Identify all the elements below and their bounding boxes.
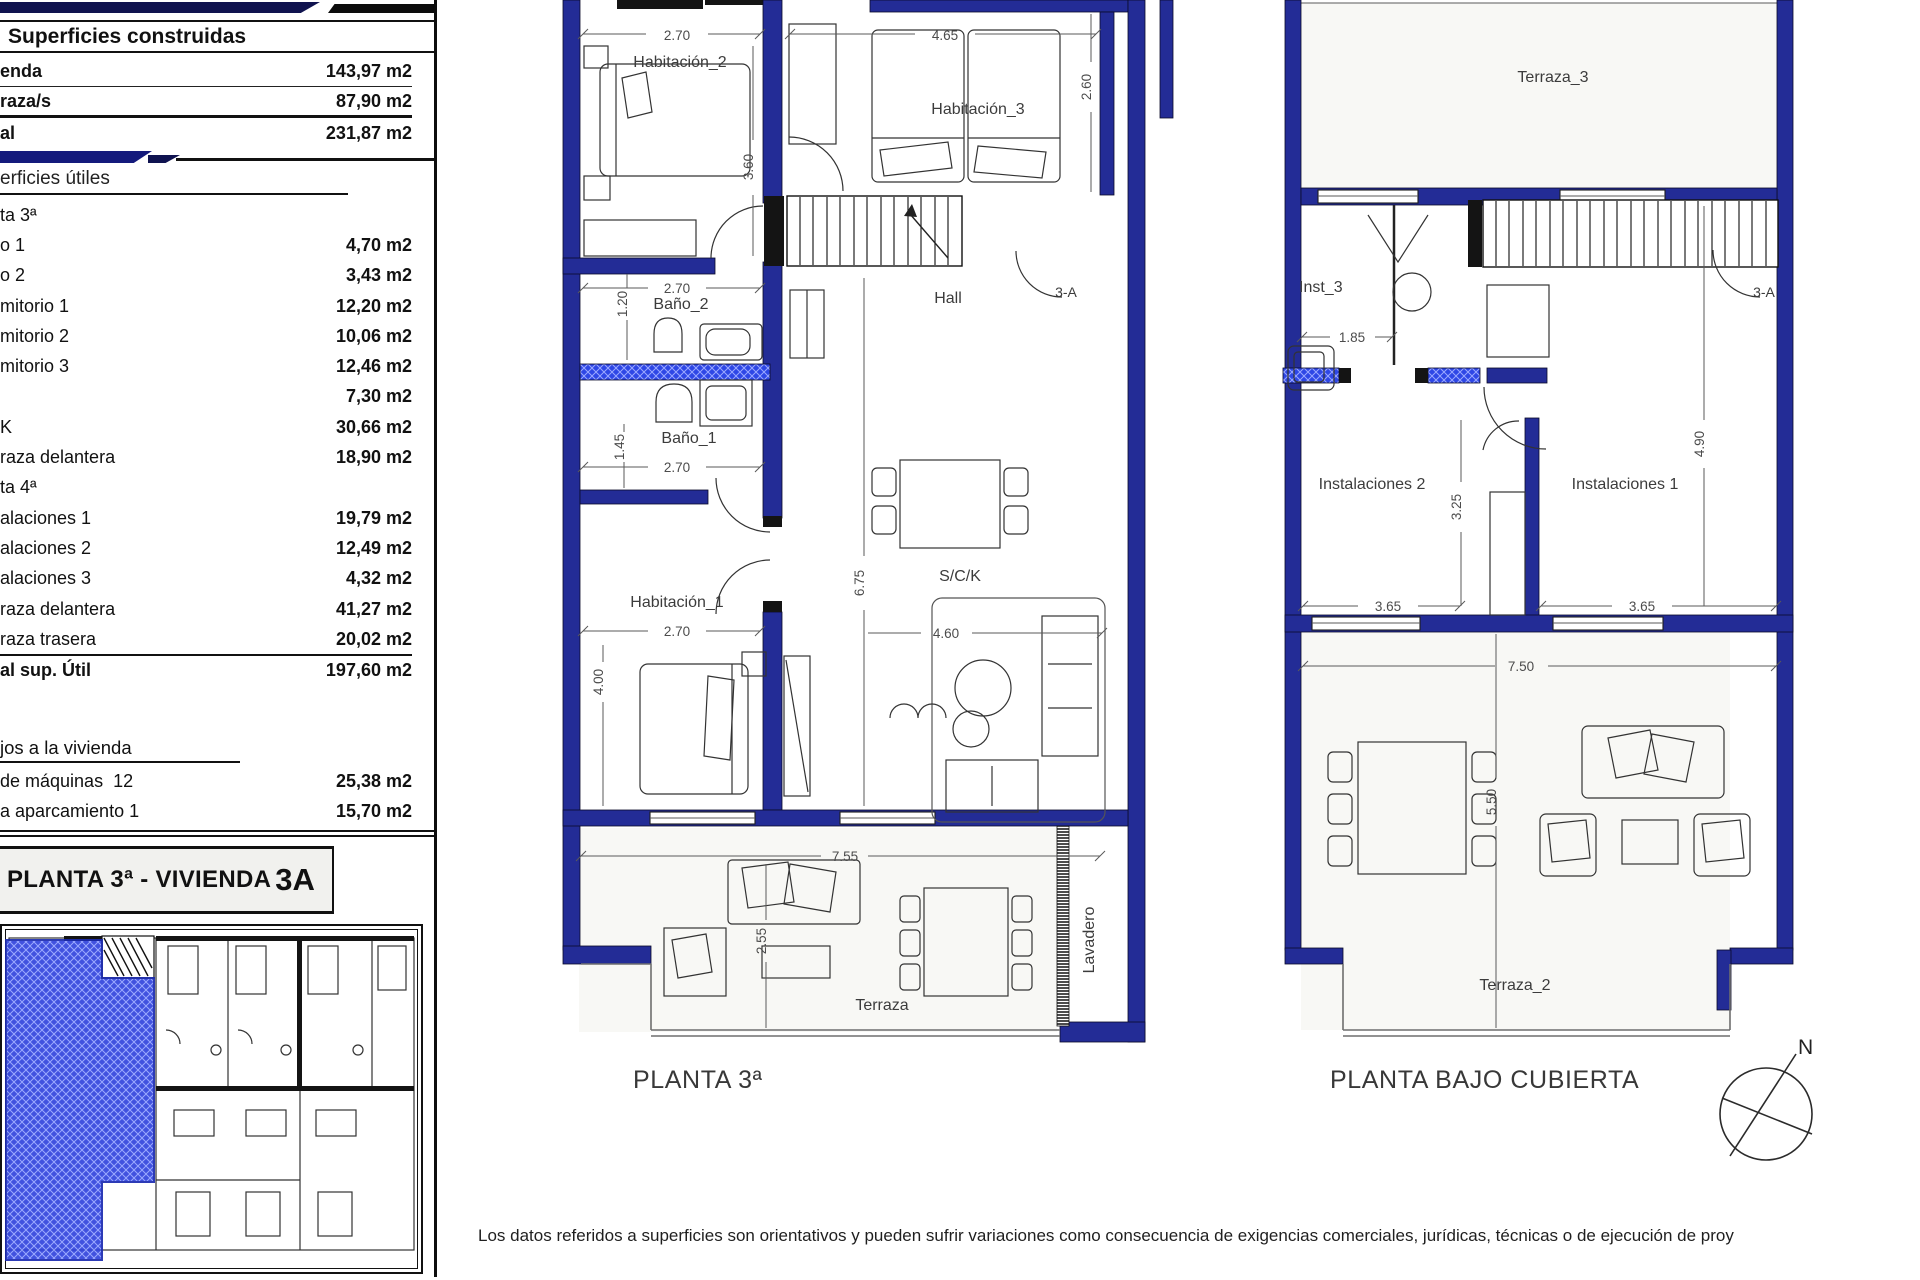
bedroom1-furniture	[640, 652, 810, 796]
row-label: mitorio 2	[0, 326, 69, 347]
room-label-hall: Hall	[934, 290, 962, 307]
row-label: ta 3ª	[0, 205, 37, 226]
table-row: de máquinas 12 25,38 m2	[0, 766, 412, 796]
room-label-bedroom3: Habitación_3	[931, 101, 1025, 118]
table-row: K 30,66 m2	[0, 412, 412, 442]
inst3-fixtures	[1288, 215, 1431, 390]
row-value: 12,20 m2	[336, 296, 412, 317]
hatched-wall	[580, 364, 770, 380]
compass-needle	[1722, 1054, 1812, 1156]
key-plan-inner-frame	[5, 929, 418, 1269]
svg-text:4.60: 4.60	[933, 626, 959, 641]
bedroom2-furniture	[584, 46, 750, 256]
sheet-title: PLANTA 3ª - VIVIENDA 3A	[0, 846, 334, 914]
north-label: N	[1798, 1036, 1813, 1059]
row-label: al sup. Útil	[0, 660, 91, 681]
annex-header: jos a la vivienda	[0, 737, 240, 763]
room-label-bedroom1: Habitación_1	[630, 594, 724, 611]
row-label: alaciones 3	[0, 568, 91, 589]
table-row: 7,30 m2	[0, 382, 412, 412]
svg-text:2.70: 2.70	[664, 281, 690, 296]
row-value: 10,06 m2	[336, 326, 412, 347]
row-value: 12,49 m2	[336, 538, 412, 559]
closet	[789, 24, 836, 144]
svg-text:7.50: 7.50	[1508, 659, 1534, 674]
row-label: enda	[0, 61, 42, 82]
row-value: 4,32 m2	[346, 568, 412, 589]
floor-plan-planta-3: 2.70 4.65 3.60 2.60 2.70 1.20 2.70 1.45 …	[540, 0, 1180, 1110]
room-label-terrace: Terraza	[855, 997, 908, 1014]
row-value: 20,02 m2	[336, 629, 412, 650]
svg-text:2.55: 2.55	[754, 928, 769, 954]
header-swoosh-graphic-tail	[328, 4, 437, 13]
row-label: K	[0, 417, 12, 438]
useful-surfaces-rows: ta 3ª o 1 4,70 m2 o 2 3,43 m2 mitorio 1 …	[0, 200, 412, 685]
table-row: al 231,87 m2	[0, 118, 412, 149]
svg-text:3.65: 3.65	[1375, 599, 1401, 614]
floor-plan-bajo-cubierta: 1.85 3.25 4.90 3.65 3.65 7.50 5.50 Terra…	[1260, 0, 1920, 1110]
svg-text:1.20: 1.20	[615, 291, 630, 317]
table-row: o 2 3,43 m2	[0, 261, 412, 291]
double-rule	[0, 830, 437, 837]
unit-tag: 3-A	[1753, 284, 1775, 300]
key-plan-thumbnail	[6, 930, 420, 1268]
table-row: al sup. Útil 197,60 m2	[0, 654, 412, 684]
bath1-fixtures	[656, 380, 752, 426]
row-value: 30,66 m2	[336, 417, 412, 438]
row-label: mitorio 3	[0, 356, 69, 377]
svg-text:2.60: 2.60	[1079, 74, 1094, 100]
row-label: raza delantera	[0, 599, 115, 620]
row-label: mitorio 1	[0, 296, 69, 317]
table-row: raza delantera 18,90 m2	[0, 442, 412, 472]
svg-text:3.25: 3.25	[1449, 494, 1464, 520]
svg-text:1.85: 1.85	[1339, 330, 1365, 345]
row-value: 87,90 m2	[336, 91, 412, 112]
room-label-terrace3: Terraza_3	[1517, 69, 1588, 86]
svg-text:2.70: 2.70	[664, 460, 690, 475]
row-label: raza delantera	[0, 447, 115, 468]
room-label-inst1: Instalaciones 1	[1572, 476, 1679, 493]
row-value: 231,87 m2	[326, 123, 412, 144]
row-value: 3,43 m2	[346, 265, 412, 286]
room-label-laundry: Lavadero	[1081, 907, 1098, 974]
room-label-inst3: Inst_3	[1299, 279, 1343, 296]
shaft	[1490, 492, 1525, 615]
sheet-title-text: PLANTA 3ª - VIVIENDA	[7, 866, 271, 894]
bath2-fixtures	[654, 318, 762, 360]
svg-text:4.65: 4.65	[932, 28, 958, 43]
stairs	[764, 196, 962, 266]
header-swoosh-graphic	[0, 2, 320, 13]
svg-text:1.45: 1.45	[612, 434, 627, 460]
useful-surfaces-header: erficies útiles	[0, 168, 348, 195]
svg-text:5.50: 5.50	[1484, 789, 1499, 815]
surface-table-panel: Superficies construidas enda 143,97 m2 r…	[0, 0, 437, 1280]
hall-cabinet	[790, 290, 824, 358]
row-label: o 2	[0, 265, 25, 286]
table-row: raza trasera 20,02 m2	[0, 624, 412, 654]
row-label: al	[0, 123, 15, 144]
row-label: o 1	[0, 235, 25, 256]
north-compass: N	[1700, 1028, 1840, 1188]
table-row: alaciones 3 4,32 m2	[0, 564, 412, 594]
svg-text:7.55: 7.55	[832, 849, 858, 864]
compass-circle	[1720, 1068, 1812, 1160]
plan-caption-planta3: PLANTA 3ª	[633, 1066, 763, 1094]
room-label-bedroom2: Habitación_2	[633, 54, 727, 71]
row-label: ta 4ª	[0, 477, 37, 498]
table-row: enda 143,97 m2	[0, 56, 412, 87]
svg-text:4.00: 4.00	[591, 669, 606, 695]
table-row: ta 4ª	[0, 473, 412, 503]
row-value: 7,30 m2	[346, 386, 412, 407]
svg-text:3.60: 3.60	[741, 154, 756, 180]
row-value: 143,97 m2	[326, 61, 412, 82]
row-value: 15,70 m2	[336, 801, 412, 822]
key-plan-highlight-unit-3a	[6, 940, 154, 1260]
svg-text:2.70: 2.70	[664, 624, 690, 639]
key-plan-stairs	[102, 936, 154, 978]
room-label-bath2: Baño_2	[653, 296, 708, 313]
row-label: de máquinas 12	[0, 771, 133, 792]
room-label-inst2: Instalaciones 2	[1319, 476, 1426, 493]
unit-tag: 3-A	[1055, 284, 1077, 300]
table-row: mitorio 2 10,06 m2	[0, 321, 412, 351]
kitchen-fixtures	[890, 598, 1105, 822]
built-surfaces-rows: enda 143,97 m2 raza/s 87,90 m2 al 231,87…	[0, 56, 412, 149]
disclaimer-text: Los datos referidos a superficies son or…	[478, 1226, 1920, 1246]
table-row: a aparcamiento 1 15,70 m2	[0, 796, 412, 826]
panel-divider-line	[434, 0, 437, 1277]
terrace2-floor	[1301, 632, 1730, 1030]
door-swings	[1483, 250, 1760, 450]
row-label: raza trasera	[0, 629, 96, 650]
table-row: alaciones 1 19,79 m2	[0, 503, 412, 533]
table-row: raza/s 87,90 m2	[0, 87, 412, 118]
svg-text:3.65: 3.65	[1629, 599, 1655, 614]
sheet-title-unit: 3A	[275, 862, 315, 898]
row-value: 25,38 m2	[336, 771, 412, 792]
annex-rows: de máquinas 12 25,38 m2 a aparcamiento 1…	[0, 766, 412, 827]
dining-table	[872, 460, 1028, 548]
room-label-sck: S/C/K	[939, 568, 981, 585]
table-row: raza delantera 41,27 m2	[0, 594, 412, 624]
table-row: o 1 4,70 m2	[0, 230, 412, 260]
stairs	[1468, 200, 1778, 357]
divider-swoosh-graphic	[0, 151, 152, 163]
key-plan-frame	[0, 924, 423, 1274]
row-value: 41,27 m2	[336, 599, 412, 620]
table-row: ta 3ª	[0, 200, 412, 230]
row-value: 197,60 m2	[326, 660, 412, 681]
table-row: mitorio 3 12,46 m2	[0, 351, 412, 381]
divider-line	[176, 158, 437, 161]
row-label: alaciones 1	[0, 508, 91, 529]
built-surfaces-header: Superficies construidas	[0, 20, 437, 53]
table-row: alaciones 2 12,49 m2	[0, 533, 412, 563]
svg-text:6.75: 6.75	[852, 570, 867, 596]
row-value: 12,46 m2	[336, 356, 412, 377]
terrace3-floor	[1301, 3, 1777, 188]
row-value: 19,79 m2	[336, 508, 412, 529]
row-label: raza/s	[0, 91, 51, 112]
row-label: alaciones 2	[0, 538, 91, 559]
row-label: a aparcamiento 1	[0, 801, 139, 822]
plan-caption-bajo-cubierta: PLANTA BAJO CUBIERTA	[1330, 1066, 1639, 1094]
row-value: 4,70 m2	[346, 235, 412, 256]
svg-text:4.90: 4.90	[1692, 431, 1707, 457]
room-label-bath1: Baño_1	[661, 430, 716, 447]
table-row: mitorio 1 12,20 m2	[0, 291, 412, 321]
row-value: 18,90 m2	[336, 447, 412, 468]
room-label-terrace2: Terraza_2	[1479, 977, 1550, 994]
svg-text:2.70: 2.70	[664, 28, 690, 43]
plan-sheet: Superficies construidas enda 143,97 m2 r…	[0, 0, 1920, 1280]
